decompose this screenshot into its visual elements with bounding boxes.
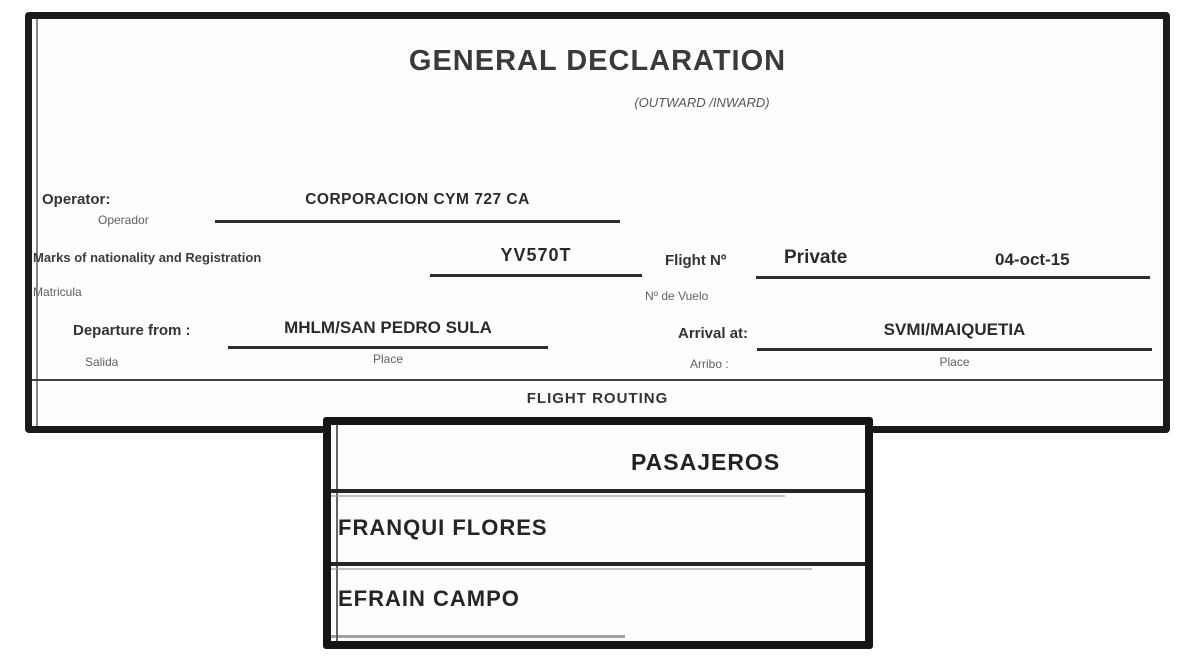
- arrival-field: SVMI/MAIQUETIA: [757, 320, 1152, 351]
- arrival-place-label: Place: [757, 355, 1152, 369]
- departure-value: MHLM/SAN PEDRO SULA: [284, 318, 492, 337]
- flight-number-sublabel: Nº de Vuelo: [645, 289, 708, 303]
- pax-row-divider-smear: [331, 568, 812, 570]
- flight-date-value: 04-oct-15: [995, 250, 1070, 270]
- left-inner-scan-line: [36, 19, 38, 426]
- passengers-box: PASAJEROS FRANQUI FLORES EFRAIN CAMPO: [323, 417, 873, 649]
- operator-field: CORPORACION CYM 727 CA: [215, 191, 620, 223]
- general-declaration-title: GENERAL DECLARATION: [32, 45, 1163, 78]
- operator-label: Operator:: [42, 191, 110, 208]
- registration-value: YV570T: [500, 245, 571, 265]
- registration-sublabel: Matricula: [33, 285, 82, 299]
- arrival-sublabel: Arribo :: [690, 357, 729, 371]
- pax-header-divider-smear: [331, 495, 785, 497]
- flight-routing-header: FLIGHT ROUTING: [32, 390, 1163, 407]
- arrival-label: Arrival at:: [678, 325, 748, 342]
- registration-label: Marks of nationality and Registration: [33, 250, 261, 265]
- flight-number-label: Flight Nº: [665, 252, 726, 269]
- registration-field: YV570T: [430, 245, 642, 277]
- passengers-header: PASAJEROS: [631, 449, 780, 476]
- passenger-name: FRANQUI FLORES: [338, 515, 548, 541]
- pax-row-divider: [331, 562, 865, 566]
- departure-field: MHLM/SAN PEDRO SULA: [228, 318, 548, 349]
- flight-type-value: Private: [784, 247, 847, 269]
- passenger-name: EFRAIN CAMPO: [338, 586, 520, 612]
- departure-sublabel: Salida: [85, 355, 118, 369]
- pax-bottom-scan-smear: [331, 635, 625, 638]
- declaration-form-box: GENERAL DECLARATION (OUTWARD /INWARD) Op…: [25, 12, 1170, 433]
- pax-header-divider: [331, 489, 865, 493]
- scanned-general-declaration: GENERAL DECLARATION (OUTWARD /INWARD) Op…: [0, 0, 1200, 664]
- operator-sublabel: Operador: [98, 213, 149, 227]
- departure-place-label: Place: [228, 352, 548, 366]
- routing-divider-line: [32, 379, 1163, 381]
- outward-inward-subtitle: (OUTWARD /INWARD): [587, 95, 817, 110]
- departure-label: Departure from :: [73, 322, 191, 339]
- arrival-value: SVMI/MAIQUETIA: [884, 320, 1026, 339]
- operator-value: CORPORACION CYM 727 CA: [305, 191, 530, 208]
